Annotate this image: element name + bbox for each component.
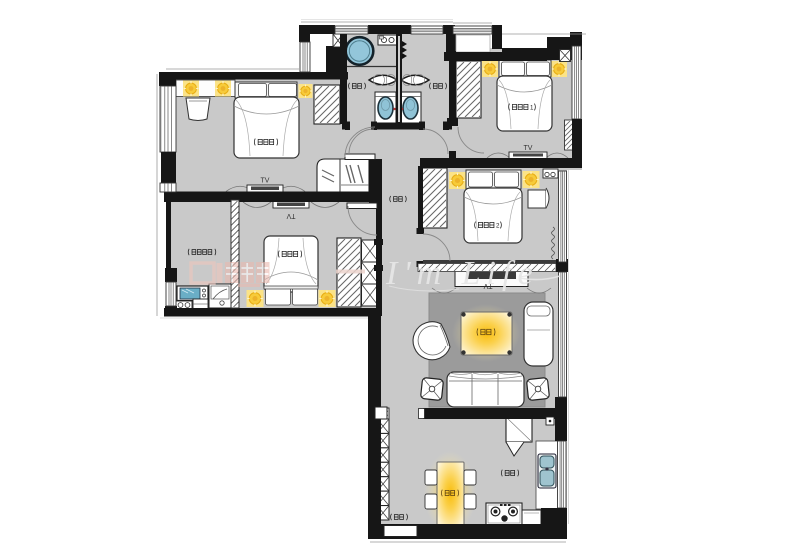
svg-text:2: 2 [496, 222, 500, 229]
svg-text:1: 1 [530, 104, 534, 111]
svg-text:TV: TV [524, 145, 533, 152]
svg-text:TV: TV [286, 212, 295, 219]
svg-text:I'm Life: I'm Life [385, 255, 539, 292]
svg-text:TV: TV [261, 178, 270, 185]
